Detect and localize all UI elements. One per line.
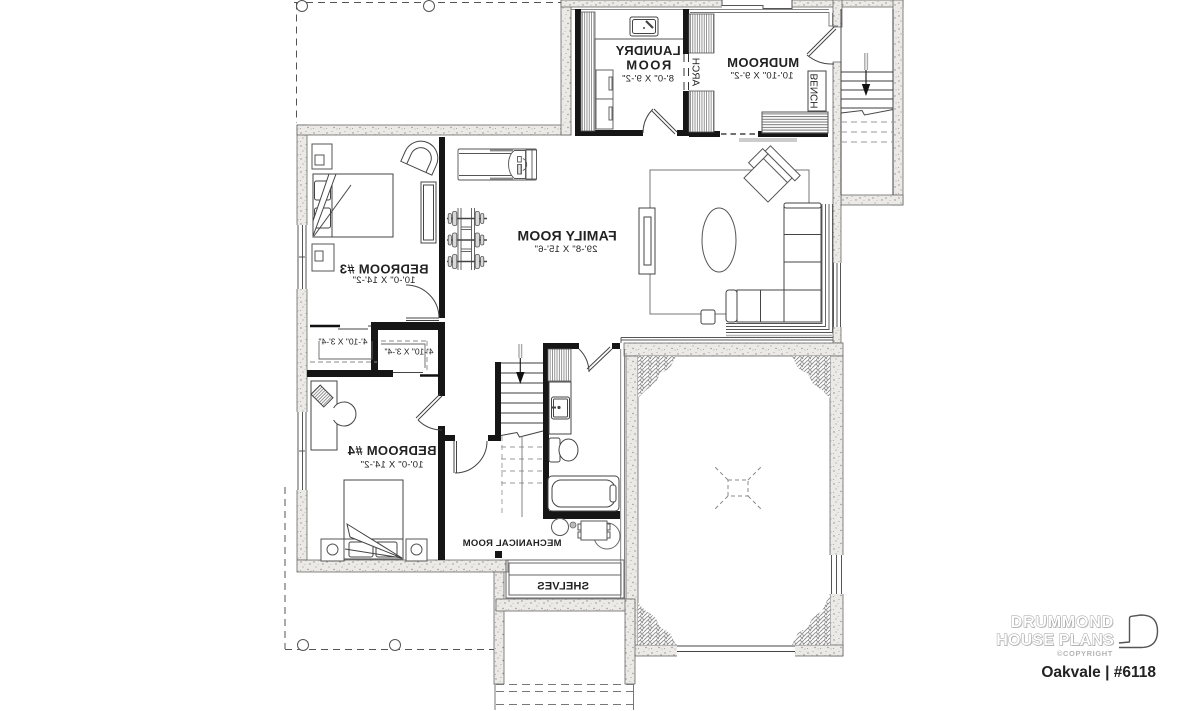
svg-text:BEDROOM #4: BEDROOM #4 bbox=[347, 443, 436, 458]
svg-text:ARCH: ARCH bbox=[690, 58, 701, 86]
svg-text:MECHANICAL ROOM: MECHANICAL ROOM bbox=[463, 538, 562, 549]
svg-text:29'-8" X 15'-6": 29'-8" X 15'-6" bbox=[534, 244, 597, 255]
svg-text:FAMILY ROOM: FAMILY ROOM bbox=[517, 228, 616, 244]
svg-text:10'-0" X 14'-2": 10'-0" X 14'-2" bbox=[360, 460, 423, 471]
svg-text:10'-10" X 9'-2": 10'-10" X 9'-2" bbox=[730, 71, 793, 82]
svg-text:ROOM: ROOM bbox=[625, 58, 671, 73]
svg-text:©COPYRIGHT: ©COPYRIGHT bbox=[1057, 649, 1113, 658]
svg-text:BENCH: BENCH bbox=[810, 73, 821, 108]
svg-text:4'-10" X 3'-4": 4'-10" X 3'-4" bbox=[385, 347, 434, 357]
svg-text:Oakvale | #6118: Oakvale | #6118 bbox=[1041, 664, 1156, 681]
svg-text:SHELVES: SHELVES bbox=[537, 581, 589, 593]
svg-text:10'-0" X 14'-2": 10'-0" X 14'-2" bbox=[352, 275, 415, 286]
svg-text:MUDROOM: MUDROOM bbox=[727, 55, 799, 70]
svg-text:HOUSE PLANS: HOUSE PLANS bbox=[996, 632, 1114, 649]
svg-text:LAUNDRY: LAUNDRY bbox=[615, 43, 680, 58]
svg-text:4'-10" X 3'-4": 4'-10" X 3'-4" bbox=[319, 337, 368, 347]
svg-text:DRUMMOND: DRUMMOND bbox=[1011, 614, 1114, 631]
svg-text:8'-0" X 9'-2": 8'-0" X 9'-2" bbox=[622, 74, 674, 85]
